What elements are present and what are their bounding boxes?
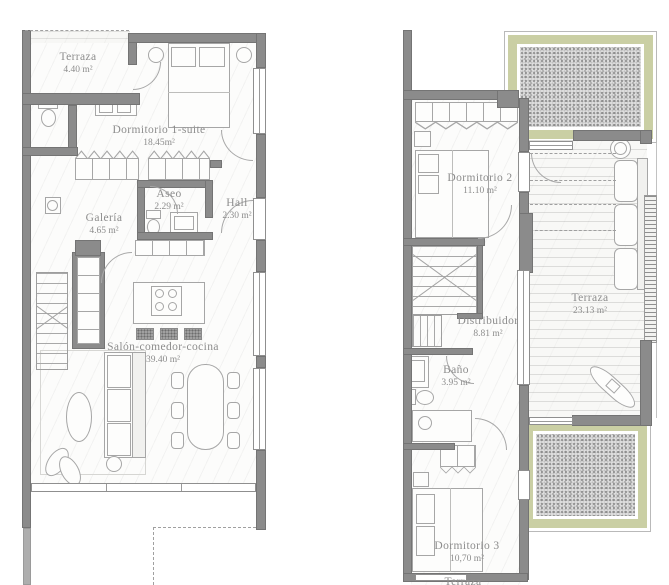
room-label-salon: Salón-comedor-cocina 39.40 m²: [107, 341, 219, 366]
wall: [497, 90, 519, 108]
pergola-green-band: [508, 35, 653, 139]
stool: [184, 328, 202, 340]
wall: [403, 348, 473, 355]
room-label-dormitorio1: Dormitorio 1-suite 18.45m²: [112, 124, 205, 149]
sofa-cushion: [107, 423, 131, 456]
chair: [227, 432, 240, 449]
room-label-distribuidor: Distribuidor 8.81 m²: [457, 315, 518, 340]
stairs-lower-flight: [412, 315, 442, 347]
window: [518, 470, 530, 500]
sliding-door: [31, 483, 256, 492]
room-label-dormitorio3: Dormitorio 3 10,70 m²: [434, 540, 499, 565]
wall: [256, 450, 266, 530]
wall: [640, 130, 652, 144]
wall: [22, 93, 140, 105]
pillow: [418, 175, 439, 194]
stair-line: [412, 246, 477, 310]
wall: [210, 160, 222, 168]
wall: [403, 30, 412, 582]
window: [517, 270, 530, 385]
burner: [168, 302, 177, 311]
wardrobe-rail: [440, 466, 476, 474]
outdoor-sofa-cushion: [614, 204, 638, 246]
kitchen-counter: [135, 240, 205, 256]
tall-cabinet: [77, 257, 100, 344]
wall: [137, 180, 145, 240]
window: [253, 272, 266, 356]
room-label-galeria: Galería 4.65 m²: [86, 212, 123, 237]
chair: [171, 432, 184, 449]
wall: [572, 415, 650, 426]
vanity-basin: [174, 216, 194, 230]
wall: [75, 240, 101, 256]
outdoor-sofa-cushion: [614, 160, 638, 202]
burner: [168, 289, 177, 298]
overhang-dashed-line: [530, 204, 616, 205]
wall: [519, 213, 533, 273]
room-label-aseo: Aseo 2.29 m²: [154, 188, 183, 213]
wall: [477, 245, 483, 317]
chair: [227, 402, 240, 419]
pillow: [199, 47, 225, 67]
sink-basin: [410, 360, 425, 382]
wall: [128, 33, 266, 43]
chair: [227, 372, 240, 389]
bed-fold-line: [168, 92, 230, 93]
nightstand: [413, 472, 429, 487]
utility-sink-bowl: [47, 200, 58, 211]
chair: [171, 402, 184, 419]
pillow: [416, 494, 435, 524]
pillow: [418, 154, 439, 173]
wall: [205, 180, 213, 218]
stairs: [36, 272, 68, 370]
wardrobe: [75, 158, 139, 180]
overhang-dashed-line: [530, 230, 616, 231]
wall: [519, 98, 529, 152]
room-label-terraza-bottom-cut: Terraza: [444, 576, 481, 585]
window: [529, 141, 573, 150]
stairs: [412, 245, 477, 315]
entry-door-opening: [253, 198, 266, 240]
gravel-area: [536, 434, 635, 516]
wall: [68, 105, 77, 149]
door-opening: [518, 152, 530, 192]
toilet-bowl: [41, 109, 56, 127]
nightstand: [414, 131, 431, 147]
shower-drain: [418, 416, 432, 430]
coffee-table: [66, 392, 92, 442]
dining-table: [187, 364, 224, 450]
outdoor-sofa-cushion: [614, 248, 638, 290]
nightstand: [236, 47, 252, 63]
wall: [256, 240, 266, 272]
floorplan-canvas: Terraza 4.40 m² Dormitorio 1-suite 18.45…: [0, 0, 669, 585]
pillow: [416, 526, 435, 556]
room-label-bano: Baño 3.95 m²: [441, 364, 470, 389]
room-label-dormitorio2: Dormitorio 2 11.10 m²: [447, 172, 512, 197]
room-label-terraza-upper: Terraza 23.13 m²: [571, 292, 608, 317]
dashed-boundary: [153, 527, 256, 528]
chair: [171, 372, 184, 389]
stool: [136, 328, 154, 340]
room-label-hall: Hall 2.30 m²: [222, 197, 251, 222]
louver-slats: [644, 195, 657, 343]
wardrobe: [148, 158, 210, 180]
wall: [403, 238, 485, 246]
stair-line: [36, 302, 68, 333]
wardrobe-rail: [415, 121, 518, 130]
pergola-green-band: [524, 422, 647, 528]
sofa-back: [132, 352, 146, 458]
sofa-cushion: [107, 389, 131, 422]
wall: [22, 147, 78, 156]
wall: [137, 232, 213, 240]
nightstand: [148, 47, 164, 63]
wall: [573, 130, 649, 141]
wall: [137, 180, 213, 188]
wall: [640, 340, 652, 426]
wall: [256, 134, 266, 198]
window: [529, 417, 573, 425]
window: [253, 68, 266, 134]
pergola-frame: [520, 418, 651, 532]
wall: [256, 356, 266, 368]
room-label-terraza-ground: Terraza 4.40 m²: [59, 51, 96, 76]
stool: [160, 328, 178, 340]
wall: [256, 33, 266, 68]
dashed-boundary: [153, 527, 154, 585]
burner: [155, 289, 164, 298]
dashed-boundary: [25, 30, 129, 31]
overhang-dashed-line: [530, 180, 616, 181]
side-table: [106, 456, 122, 472]
window: [253, 368, 266, 450]
wall: [403, 443, 455, 450]
wall-low: [23, 528, 31, 585]
burner: [155, 302, 164, 311]
toilet-bowl: [416, 390, 434, 405]
pillow: [171, 47, 196, 67]
gravel-area: [520, 47, 641, 127]
